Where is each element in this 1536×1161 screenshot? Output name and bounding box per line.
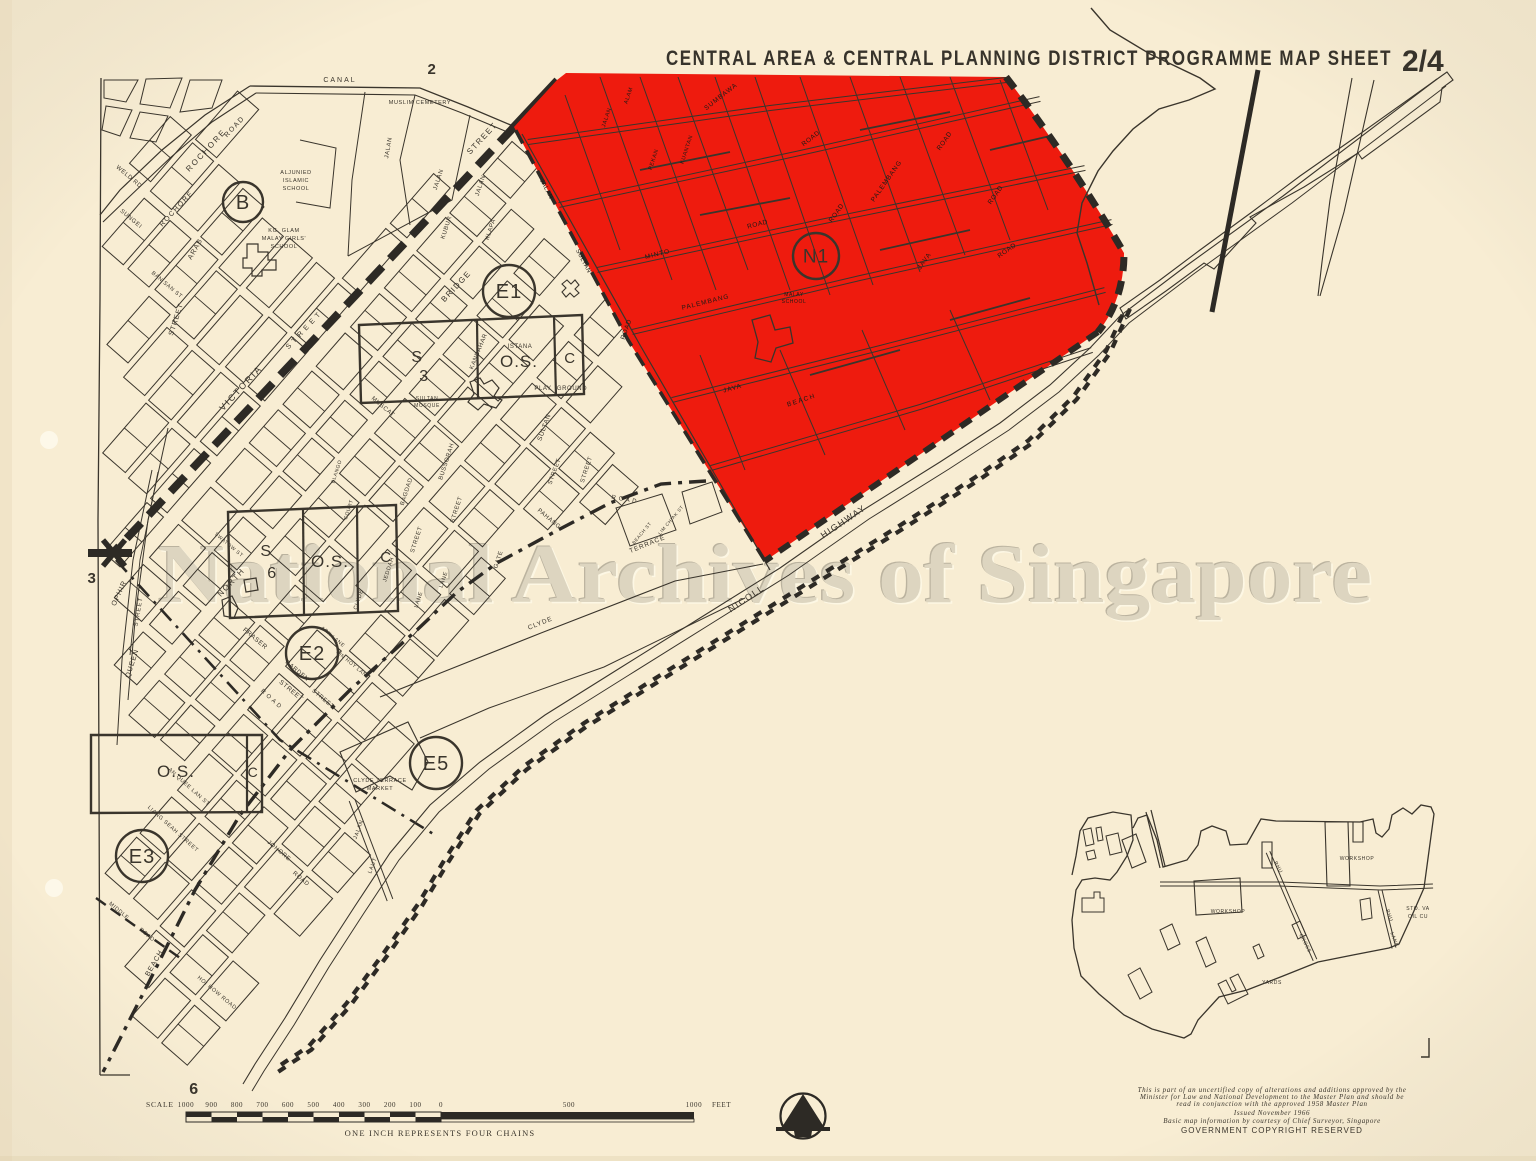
svg-text:6: 6: [267, 565, 277, 582]
svg-text:S: S: [260, 543, 271, 560]
svg-text:SULTAN: SULTAN: [416, 396, 439, 402]
svg-text:FEET: FEET: [712, 1101, 731, 1109]
svg-text:SCHOOL: SCHOOL: [283, 186, 310, 192]
svg-text:N1: N1: [803, 247, 829, 268]
svg-text:2/4: 2/4: [1402, 45, 1444, 78]
svg-text:600: 600: [282, 1101, 294, 1109]
svg-text:Basic map information by court: Basic map information by courtesy of Chi…: [1163, 1117, 1381, 1125]
svg-text:0: 0: [439, 1101, 443, 1109]
svg-text:GOVERNMENT COPYRIGHT RESERVED: GOVERNMENT COPYRIGHT RESERVED: [1181, 1126, 1363, 1135]
svg-text:500: 500: [563, 1101, 575, 1109]
svg-text:400: 400: [333, 1101, 345, 1109]
svg-text:WORKSHOP: WORKSHOP: [1340, 856, 1375, 862]
svg-text:CENTRAL AREA & CENTRAL PLANNIN: CENTRAL AREA & CENTRAL PLANNING DISTRICT…: [666, 46, 1392, 70]
svg-text:700: 700: [256, 1101, 268, 1109]
svg-text:6: 6: [189, 1081, 199, 1098]
svg-text:CANAL: CANAL: [323, 77, 356, 84]
svg-text:E1: E1: [496, 281, 522, 303]
svg-text:3: 3: [88, 570, 97, 587]
svg-text:PLAY: PLAY: [534, 386, 551, 392]
svg-text:C: C: [564, 350, 575, 367]
svg-text:O.S.: O.S.: [500, 352, 538, 371]
svg-text:ISTANA: ISTANA: [508, 344, 533, 350]
svg-text:1000: 1000: [178, 1101, 194, 1109]
svg-text:S: S: [411, 349, 422, 366]
svg-text:300: 300: [358, 1101, 370, 1109]
svg-text:B: B: [236, 192, 250, 214]
svg-text:MALAY: MALAY: [784, 292, 804, 298]
svg-text:KG. GLAM: KG. GLAM: [268, 228, 299, 234]
svg-text:MOSQUE: MOSQUE: [414, 403, 440, 409]
svg-text:GROUND: GROUND: [557, 386, 587, 392]
svg-text:ALJUNIED: ALJUNIED: [280, 170, 311, 176]
svg-text:MALAY GIRLS': MALAY GIRLS': [262, 236, 306, 242]
svg-text:E2: E2: [299, 643, 325, 665]
svg-text:MARKET: MARKET: [367, 786, 394, 792]
svg-text:STO. VA: STO. VA: [1406, 906, 1430, 912]
svg-text:500: 500: [307, 1101, 319, 1109]
svg-text:3: 3: [419, 368, 429, 385]
svg-text:ONE INCH REPRESENTS FOUR CHAIN: ONE INCH REPRESENTS FOUR CHAINS: [345, 1128, 536, 1138]
svg-text:Issued November 1966: Issued November 1966: [1233, 1109, 1310, 1117]
svg-text:C: C: [248, 764, 259, 780]
svg-text:900: 900: [205, 1101, 217, 1109]
svg-text:2: 2: [428, 61, 437, 78]
svg-text:200: 200: [384, 1101, 396, 1109]
svg-text:1000: 1000: [686, 1101, 702, 1109]
svg-text:read in conjunction with the a: read in conjunction with the approved 19…: [1176, 1100, 1367, 1108]
svg-text:SCHOOL: SCHOOL: [271, 244, 298, 250]
svg-text:CLYDE TERRACE: CLYDE TERRACE: [353, 778, 406, 784]
svg-text:YARDS: YARDS: [1262, 980, 1282, 986]
svg-text:SCHOOL: SCHOOL: [782, 299, 807, 305]
svg-text:MUSLIM CEMETERY: MUSLIM CEMETERY: [389, 100, 451, 106]
svg-text:100: 100: [409, 1101, 421, 1109]
svg-text:SCALE: SCALE: [146, 1100, 174, 1109]
svg-text:O.S.: O.S.: [311, 552, 349, 571]
svg-text:WORKSHOP: WORKSHOP: [1211, 909, 1246, 915]
svg-text:E3: E3: [129, 846, 155, 868]
svg-text:OIL CU: OIL CU: [1408, 914, 1428, 920]
svg-text:ISLAMIC: ISLAMIC: [283, 178, 309, 184]
svg-text:800: 800: [231, 1101, 243, 1109]
